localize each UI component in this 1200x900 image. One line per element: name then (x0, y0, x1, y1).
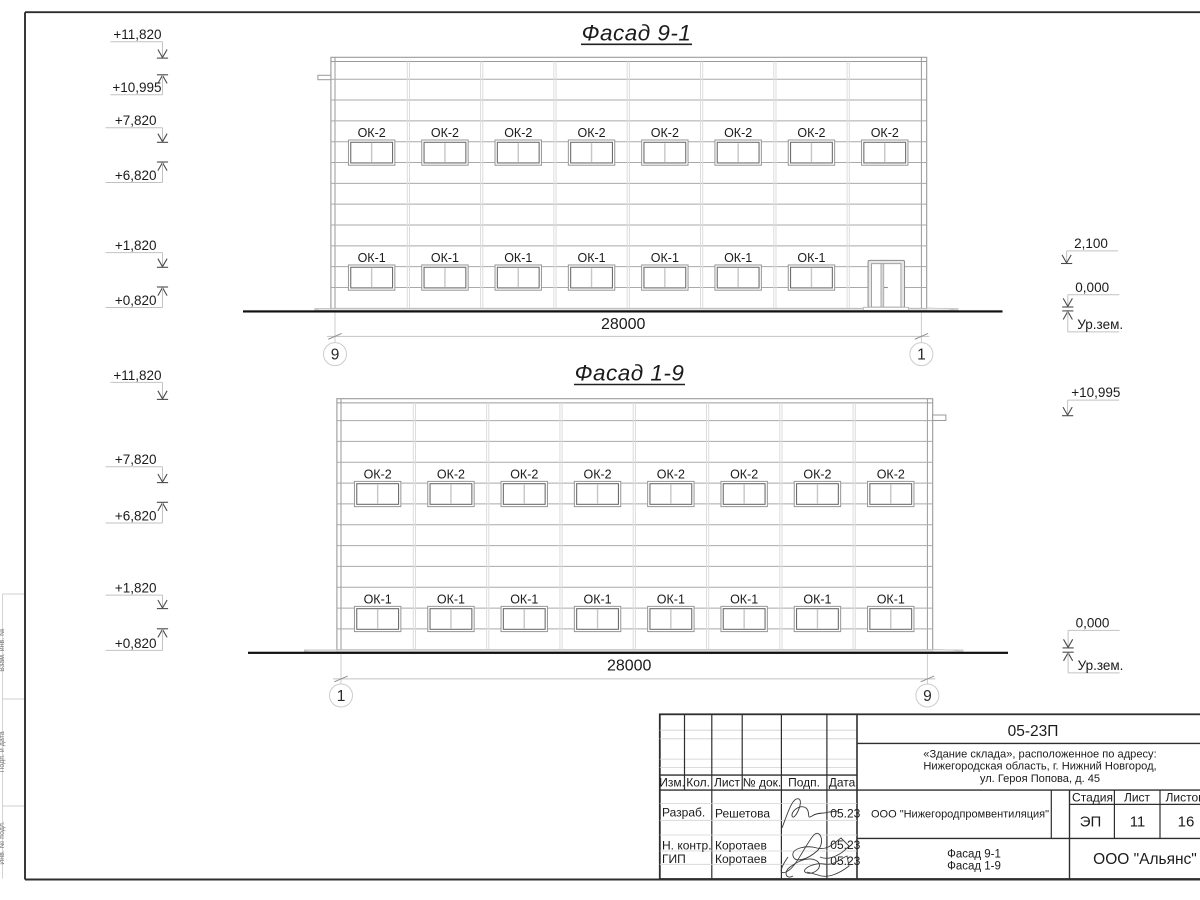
svg-text:ОК-2: ОК-2 (504, 126, 532, 140)
svg-text:ОК-2: ОК-2 (651, 126, 679, 140)
svg-text:Коротаев: Коротаев (715, 852, 767, 866)
svg-text:№ док.: № док. (743, 776, 781, 790)
svg-text:Фасад 1-9: Фасад 1-9 (575, 361, 685, 386)
svg-text:ОК-2: ОК-2 (877, 467, 905, 481)
svg-text:Фасад 9-1: Фасад 9-1 (582, 21, 692, 46)
svg-text:ОК-2: ОК-2 (437, 467, 465, 481)
svg-text:11: 11 (1130, 814, 1146, 831)
svg-text:+10,995: +10,995 (1071, 385, 1120, 400)
svg-text:Нижегородская область, г. Нижн: Нижегородская область, г. Нижний Новгоро… (923, 761, 1156, 773)
svg-text:Подп.: Подп. (788, 776, 820, 790)
svg-text:ОК-2: ОК-2 (803, 467, 831, 481)
svg-text:«Здание склада», расположенное: «Здание склада», расположенное по адресу… (923, 749, 1156, 761)
svg-text:+11,820: +11,820 (113, 27, 161, 42)
svg-text:Кол.: Кол. (686, 776, 710, 790)
svg-text:ОК-1: ОК-1 (724, 251, 752, 265)
svg-text:ОК-2: ОК-2 (364, 467, 392, 481)
svg-text:ОК-2: ОК-2 (510, 467, 538, 481)
svg-text:Ур.зем.: Ур.зем. (1078, 658, 1124, 673)
svg-text:ОК-1: ОК-1 (358, 251, 386, 265)
svg-text:Подп. и дата: Подп. и дата (0, 731, 6, 772)
svg-text:ОК-1: ОК-1 (364, 592, 392, 606)
svg-text:ОК-1: ОК-1 (583, 592, 611, 606)
svg-text:Листов: Листов (1166, 790, 1200, 804)
svg-text:ОК-2: ОК-2 (657, 467, 685, 481)
svg-text:+6,820: +6,820 (115, 168, 157, 183)
svg-text:+7,820: +7,820 (115, 113, 157, 128)
svg-text:ОК-1: ОК-1 (431, 251, 459, 265)
svg-text:Н. контр.: Н. контр. (662, 838, 712, 852)
svg-text:ОК-2: ОК-2 (730, 467, 758, 481)
svg-text:Ур.зем.: Ур.зем. (1077, 317, 1123, 332)
svg-text:ООО "Альянс": ООО "Альянс" (1093, 851, 1197, 868)
svg-text:ОК-1: ОК-1 (651, 251, 679, 265)
svg-text:ОК-2: ОК-2 (431, 126, 459, 140)
svg-text:ОК-1: ОК-1 (510, 592, 538, 606)
svg-text:ЭП: ЭП (1080, 814, 1102, 831)
svg-text:ул. Героя Попова, д. 45: ул. Героя Попова, д. 45 (980, 773, 1100, 785)
svg-text:ОК-2: ОК-2 (583, 467, 611, 481)
svg-text:05.23: 05.23 (830, 806, 860, 820)
svg-text:Лист: Лист (714, 776, 741, 790)
svg-text:ОК-1: ОК-1 (437, 592, 465, 606)
svg-text:Разраб.: Разраб. (662, 805, 705, 819)
svg-text:Коротаев: Коротаев (715, 839, 767, 853)
svg-text:Дата: Дата (829, 776, 856, 790)
svg-text:0,000: 0,000 (1075, 280, 1109, 295)
svg-text:ОК-1: ОК-1 (577, 251, 605, 265)
svg-text:ОК-2: ОК-2 (871, 126, 899, 140)
svg-text:Фасад 9-1: Фасад 9-1 (947, 849, 1001, 861)
svg-text:ОК-2: ОК-2 (358, 126, 386, 140)
svg-text:ОК-2: ОК-2 (577, 126, 605, 140)
svg-text:9: 9 (331, 347, 340, 364)
svg-text:ОК-1: ОК-1 (803, 592, 831, 606)
svg-text:16: 16 (1178, 814, 1195, 831)
svg-text:ОК-2: ОК-2 (797, 126, 825, 140)
svg-text:1: 1 (917, 347, 926, 364)
svg-text:+7,820: +7,820 (115, 452, 157, 467)
svg-text:+0,820: +0,820 (115, 293, 157, 308)
svg-text:ОК-1: ОК-1 (657, 592, 685, 606)
svg-text:+10,995: +10,995 (112, 80, 161, 95)
svg-text:+1,820: +1,820 (115, 238, 157, 253)
svg-text:1: 1 (337, 688, 346, 705)
svg-text:+6,820: +6,820 (115, 508, 157, 523)
svg-text:Лист: Лист (1124, 790, 1151, 804)
svg-text:+1,820: +1,820 (115, 581, 157, 596)
svg-text:Стадия: Стадия (1072, 790, 1113, 804)
svg-text:ОК-1: ОК-1 (797, 251, 825, 265)
svg-text:ГИП: ГИП (662, 852, 686, 866)
svg-text:Инв. № подл.: Инв. № подл. (0, 821, 6, 865)
svg-text:+11,820: +11,820 (113, 368, 161, 383)
svg-text:2,100: 2,100 (1074, 236, 1108, 251)
svg-text:28000: 28000 (607, 657, 652, 674)
svg-text:+0,820: +0,820 (115, 636, 157, 651)
svg-text:ОК-1: ОК-1 (730, 592, 758, 606)
svg-text:ОК-1: ОК-1 (877, 592, 905, 606)
svg-text:Фасад 1-9: Фасад 1-9 (947, 861, 1001, 873)
svg-text:Решетова: Решетова (715, 806, 770, 820)
svg-text:Изм.: Изм. (659, 776, 685, 790)
svg-text:ОК-1: ОК-1 (504, 251, 532, 265)
svg-text:9: 9 (923, 688, 932, 705)
svg-text:05-23П: 05-23П (1008, 723, 1059, 740)
svg-text:ОК-2: ОК-2 (724, 126, 752, 140)
svg-text:Взам. инв. №: Взам. инв. № (0, 628, 6, 671)
svg-text:ООО "Нижегородпромвентиляция": ООО "Нижегородпромвентиляция" (871, 809, 1049, 821)
svg-text:0,000: 0,000 (1076, 616, 1110, 631)
svg-text:28000: 28000 (601, 316, 646, 333)
